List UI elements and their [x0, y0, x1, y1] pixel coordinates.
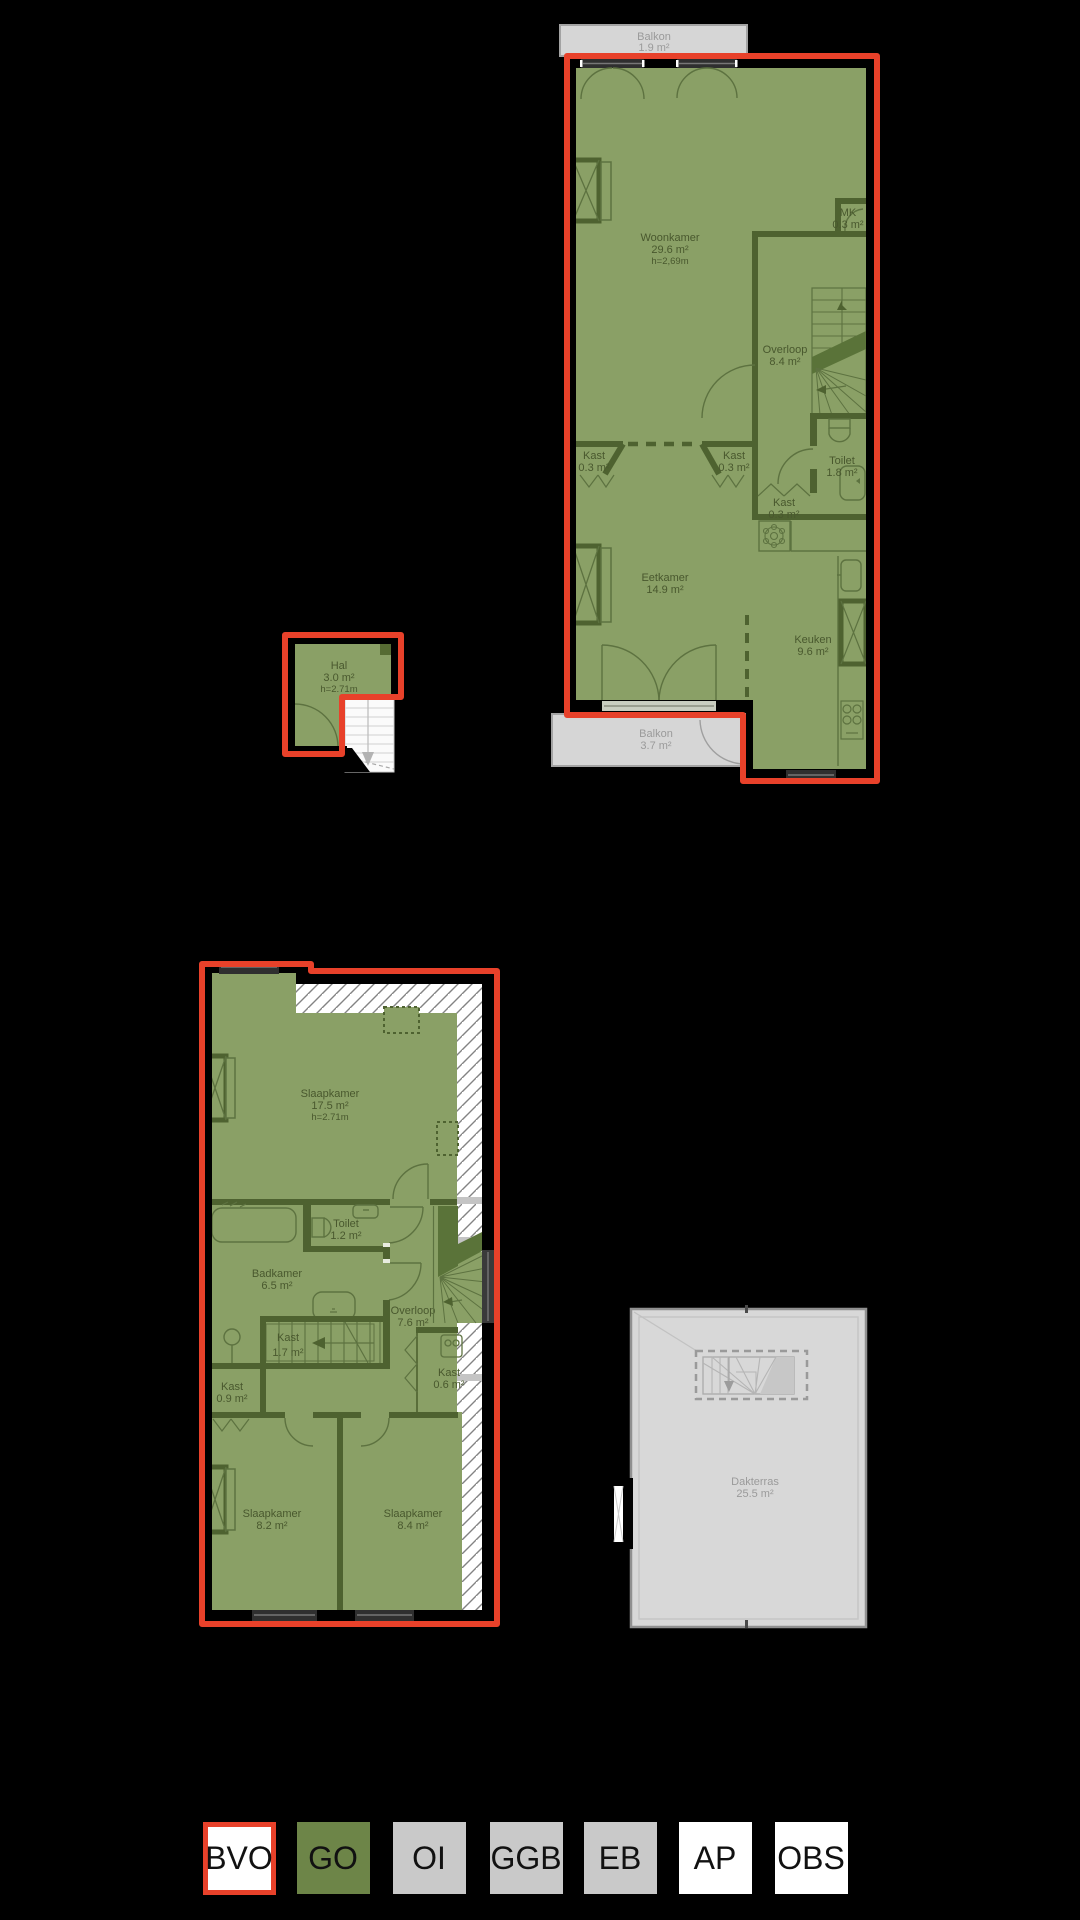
- svg-text:EB: EB: [599, 1840, 642, 1876]
- svg-text:17.5 m²: 17.5 m²: [311, 1100, 349, 1112]
- svg-text:BVO: BVO: [205, 1840, 273, 1876]
- svg-text:25.5 m²: 25.5 m²: [736, 1488, 774, 1500]
- svg-text:29.6 m²: 29.6 m²: [651, 244, 689, 256]
- svg-text:0.3 m²: 0.3 m²: [832, 219, 864, 231]
- svg-text:Dakterras: Dakterras: [731, 1476, 779, 1488]
- svg-text:Overloop: Overloop: [763, 344, 808, 356]
- svg-text:1.2 m²: 1.2 m²: [330, 1230, 362, 1242]
- svg-text:Kast: Kast: [723, 450, 745, 462]
- svg-text:h=2.71m: h=2.71m: [320, 684, 357, 695]
- svg-text:Kast: Kast: [277, 1332, 299, 1344]
- svg-text:Balkon: Balkon: [639, 728, 673, 740]
- svg-text:9.6 m²: 9.6 m²: [797, 646, 829, 658]
- svg-text:8.4 m²: 8.4 m²: [769, 356, 801, 368]
- svg-text:GO: GO: [308, 1840, 358, 1876]
- svg-text:0.3 m²: 0.3 m²: [718, 462, 750, 474]
- svg-text:h=2.71m: h=2.71m: [311, 1112, 348, 1123]
- svg-text:Toilet: Toilet: [333, 1218, 359, 1230]
- svg-text:3.7 m²: 3.7 m²: [640, 740, 672, 752]
- svg-text:Badkamer: Badkamer: [252, 1268, 302, 1280]
- svg-text:0.9 m²: 0.9 m²: [216, 1393, 248, 1405]
- svg-text:6.5 m²: 6.5 m²: [261, 1280, 293, 1292]
- svg-text:Toilet: Toilet: [829, 455, 855, 467]
- svg-text:14.9 m²: 14.9 m²: [646, 584, 684, 596]
- svg-text:Hal: Hal: [331, 660, 348, 672]
- svg-text:3.0 m²: 3.0 m²: [323, 672, 355, 684]
- svg-text:OI: OI: [412, 1840, 446, 1876]
- svg-text:Woonkamer: Woonkamer: [640, 232, 699, 244]
- svg-text:Keuken: Keuken: [794, 634, 831, 646]
- svg-text:8.4 m²: 8.4 m²: [397, 1520, 429, 1532]
- svg-text:Overloop: Overloop: [391, 1305, 436, 1317]
- svg-text:8.2 m²: 8.2 m²: [256, 1520, 288, 1532]
- svg-text:1.7 m²: 1.7 m²: [272, 1347, 304, 1359]
- svg-text:Kast: Kast: [221, 1381, 243, 1393]
- svg-text:Kast: Kast: [773, 497, 795, 509]
- svg-text:0.3 m²: 0.3 m²: [768, 509, 800, 521]
- svg-text:GGB: GGB: [490, 1840, 561, 1876]
- svg-text:Kast: Kast: [438, 1367, 460, 1379]
- svg-text:1.8 m²: 1.8 m²: [826, 467, 858, 479]
- svg-text:AP: AP: [694, 1840, 737, 1876]
- svg-text:OBS: OBS: [777, 1840, 845, 1876]
- svg-text:MK: MK: [840, 207, 857, 219]
- svg-text:Kast: Kast: [583, 450, 605, 462]
- svg-text:Slaapkamer: Slaapkamer: [301, 1088, 360, 1100]
- svg-text:1.9 m²: 1.9 m²: [638, 42, 670, 54]
- svg-text:0.3 m²: 0.3 m²: [578, 462, 610, 474]
- svg-text:Slaapkamer: Slaapkamer: [243, 1508, 302, 1520]
- svg-text:0.6 m²: 0.6 m²: [433, 1379, 465, 1391]
- svg-text:h=2,69m: h=2,69m: [651, 256, 688, 267]
- svg-text:Slaapkamer: Slaapkamer: [384, 1508, 443, 1520]
- svg-text:Eetkamer: Eetkamer: [641, 572, 688, 584]
